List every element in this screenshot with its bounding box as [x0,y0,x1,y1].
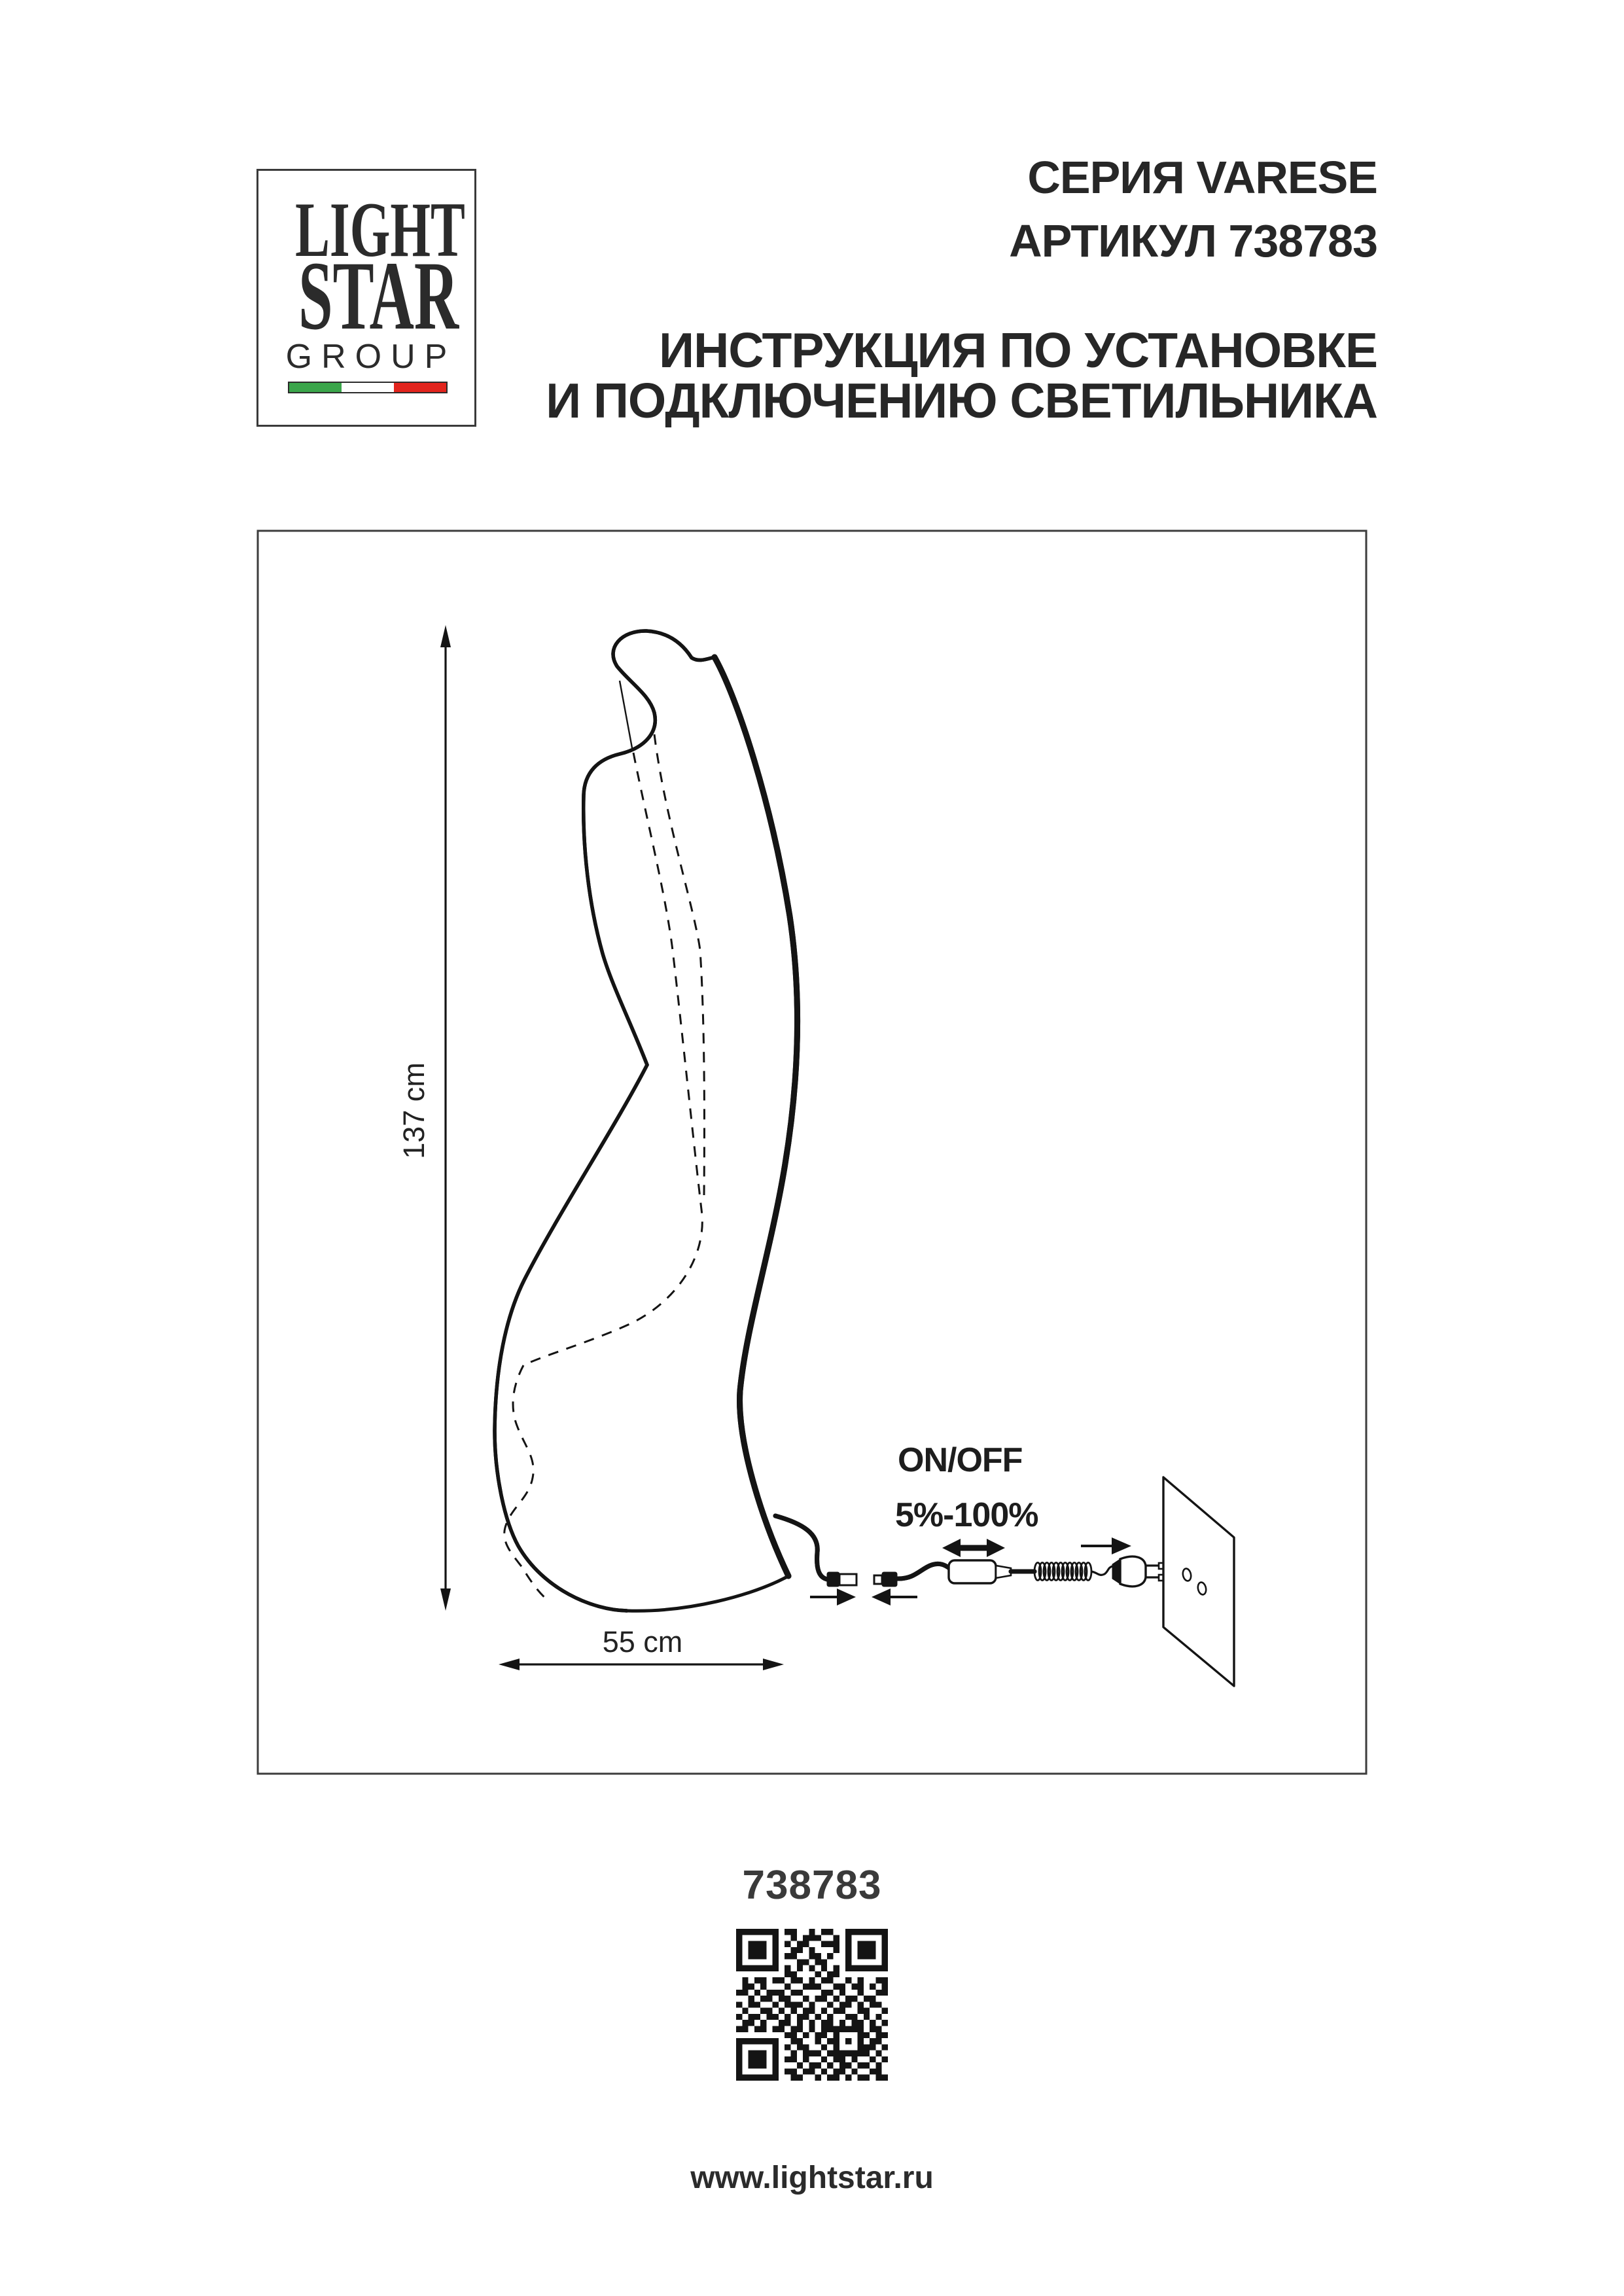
logo-word-group: GROUP [258,340,484,374]
connector-female [882,1572,897,1587]
flag-white-segment [342,383,394,392]
dimmer-switch-box [949,1560,996,1583]
height-dimension-arrow: 137 cm [397,625,451,1611]
connector-male [827,1572,839,1587]
dimmer-slide-arrow [942,1539,1005,1557]
switch-label: ON/OFF [898,1441,1022,1479]
plug-direction-arrow [1081,1537,1131,1554]
width-dimension-label: 55 cm [603,1625,683,1659]
header-instruction-block: ИНСТРУКЦИЯ ПО УСТАНОВКЕ И ПОДКЛЮЧЕНИЮ СВ… [546,325,1377,426]
qr-code [736,1929,888,2081]
power-plug [1112,1556,1168,1587]
hidden-edge-dashed-2 [654,734,704,1195]
logo-word-star: STAR [298,247,434,345]
series-title: СЕРИЯ VARESE [1009,146,1377,209]
width-dimension-arrow: 55 cm [499,1625,784,1670]
hidden-edge-dashed-1 [523,753,702,1365]
article-number: 738783 [0,1862,1624,1909]
dim-range-label: 5%-100% [895,1496,1038,1534]
connector-join-arrows [810,1588,917,1605]
floor-lamp-drawing [495,631,798,1611]
instruction-line-1: ИНСТРУКЦИЯ ПО УСТАНОВКЕ [546,325,1377,376]
flag-red-segment [394,383,446,392]
coiled-cord [1034,1563,1091,1581]
website-url: www.lightstar.ru [0,2160,1624,2196]
installation-diagram: 137 cm 55 cm ON/OFF 5%-100% [256,529,1368,1775]
lamp-base-edge [627,1576,788,1611]
article-title: АРТИКУЛ 738783 [1009,209,1377,273]
flag-green-segment [289,383,342,392]
lightstar-logo: LIGHT STAR GROUP [256,169,476,427]
height-dimension-label: 137 cm [397,1062,431,1159]
wall-socket-drawing [1163,1477,1234,1686]
lamp-fold-line [620,681,633,751]
italian-flag-bar [288,382,448,393]
header-series-block: СЕРИЯ VARESE АРТИКУЛ 738783 [1009,146,1377,273]
instruction-line-2: И ПОДКЛЮЧЕНИЮ СВЕТИЛЬНИКА [546,376,1377,426]
hidden-edge-dashed-3 [504,1365,547,1600]
